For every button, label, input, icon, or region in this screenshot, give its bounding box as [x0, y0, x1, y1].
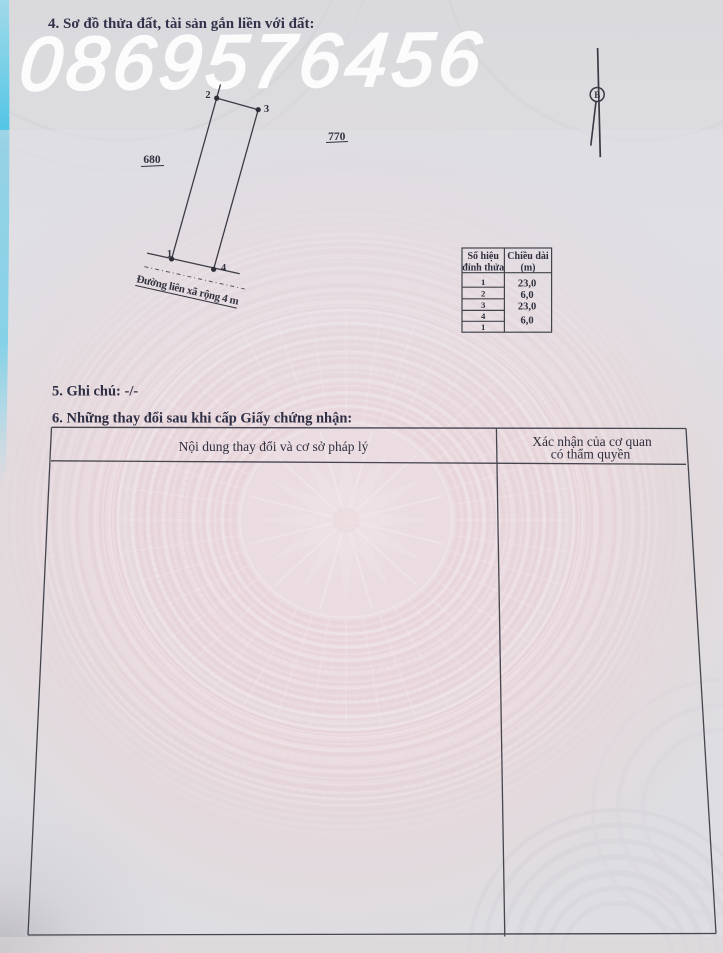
svg-text:2: 2: [205, 90, 210, 101]
svg-text:5. Ghi chú: -/-: 5. Ghi chú: -/-: [52, 383, 138, 399]
svg-text:680: 680: [143, 154, 161, 166]
svg-text:Chiều dài: Chiều dài: [507, 251, 549, 262]
svg-text:3: 3: [264, 104, 269, 115]
svg-text:4: 4: [481, 311, 486, 321]
svg-text:(m): (m): [521, 263, 536, 274]
svg-text:1: 1: [481, 322, 485, 332]
svg-text:1: 1: [481, 277, 485, 287]
svg-text:770: 770: [328, 131, 346, 143]
svg-text:có thẩm quyền: có thẩm quyền: [551, 447, 631, 462]
svg-text:3: 3: [481, 300, 486, 310]
svg-text:6,0: 6,0: [520, 290, 533, 301]
svg-text:6. Những thay đổi sau khi cấp: 6. Những thay đổi sau khi cấp Giấy chứng…: [52, 411, 352, 427]
svg-text:Số hiệu: Số hiệu: [467, 251, 499, 262]
svg-text:23,0: 23,0: [518, 279, 536, 290]
svg-text:4. Sơ đồ thửa đất, tài sản gắn: 4. Sơ đồ thửa đất, tài sản gắn liền với …: [48, 16, 315, 32]
svg-text:23,0: 23,0: [518, 302, 536, 313]
svg-text:4: 4: [221, 263, 227, 274]
svg-text:6,0: 6,0: [520, 316, 533, 327]
svg-text:B: B: [594, 90, 600, 100]
svg-text:Nội dung thay đổi và cơ sở phá: Nội dung thay đổi và cơ sở pháp lý: [179, 439, 369, 454]
svg-text:1: 1: [167, 249, 172, 260]
svg-text:2: 2: [481, 289, 486, 299]
svg-text:đỉnh thửa: đỉnh thửa: [462, 263, 504, 274]
